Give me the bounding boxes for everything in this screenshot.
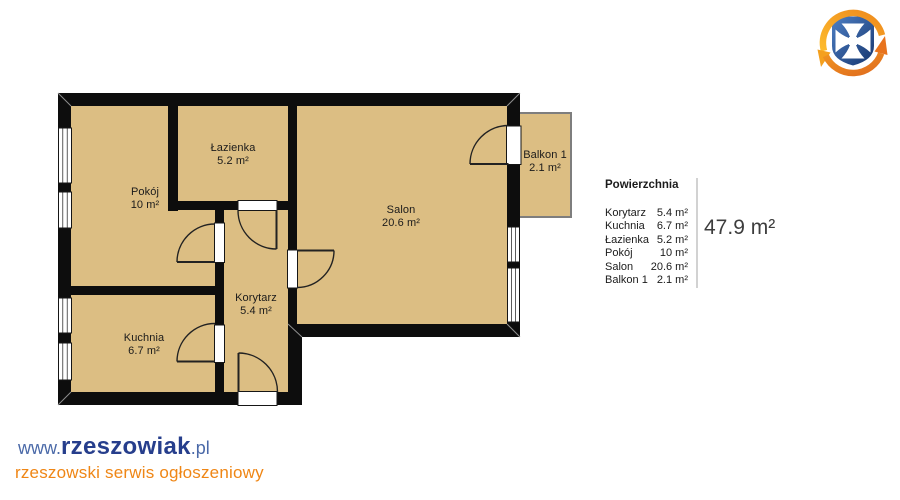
legend-divider (696, 178, 698, 288)
room-name: Korytarz (196, 292, 316, 305)
room-label-balkon: Balkon 1 2.1 m² (485, 149, 605, 174)
window-pokoj-2 (59, 192, 72, 228)
legend-row: Pokój 10 m² (605, 247, 688, 260)
window-kuchnia-1 (59, 298, 72, 333)
legend-room: Pokój (605, 247, 633, 260)
door-opening-kuchnia (215, 325, 225, 363)
window-salon-1 (508, 227, 520, 262)
door-opening-salon (288, 250, 298, 288)
legend-room: Balkon 1 (605, 274, 648, 287)
room-area: 6.7 m² (84, 345, 204, 358)
room-name: Kuchnia (84, 332, 204, 345)
rzeszow-crest-logo-icon (816, 4, 890, 80)
room-area: 20.6 m² (341, 217, 461, 230)
room-name: Salon (341, 204, 461, 217)
legend-title: Powierzchnia (605, 179, 688, 191)
site-branding: www. rzeszowiak .pl rzeszowski serwis og… (15, 433, 264, 483)
area-legend: Powierzchnia Korytarz 5.4 m² Kuchnia 6.7… (605, 179, 688, 287)
room-area: 5.2 m² (173, 155, 293, 168)
legend-value: 20.6 m² (651, 261, 688, 274)
window-salon-2 (508, 268, 520, 322)
floorplan-page: Pokój 10 m² Łazienka 5.2 m² Salon 20.6 m… (0, 0, 900, 500)
brand-www: www. (18, 438, 61, 459)
legend-value: 2.1 m² (657, 274, 688, 287)
room-area: 5.4 m² (196, 305, 316, 318)
room-label-kuchnia: Kuchnia 6.7 m² (84, 332, 204, 357)
door-opening-lazienka (238, 201, 277, 211)
window-pokoj-1 (59, 128, 72, 183)
room-name: Pokój (85, 186, 205, 199)
site-url: www. rzeszowiak .pl (18, 433, 264, 461)
legend-room: Salon (605, 261, 633, 274)
door-opening-pokoj (215, 223, 225, 263)
room-area: 10 m² (85, 199, 205, 212)
room-label-korytarz: Korytarz 5.4 m² (196, 292, 316, 317)
window-kuchnia-2 (59, 343, 72, 380)
legend-value: 10 m² (660, 247, 688, 260)
legend-value: 6.7 m² (657, 220, 688, 233)
legend-row: Salon 20.6 m² (605, 261, 688, 274)
room-label-lazienka: Łazienka 5.2 m² (173, 142, 293, 167)
total-area: 47.9 m² (704, 216, 775, 240)
room-label-salon: Salon 20.6 m² (341, 204, 461, 229)
legend-value: 5.4 m² (657, 207, 688, 220)
legend-row: Balkon 1 2.1 m² (605, 274, 688, 287)
brand-tagline: rzeszowski serwis ogłoszeniowy (15, 463, 264, 483)
legend-value: 5.2 m² (657, 234, 688, 247)
room-area: 2.1 m² (485, 162, 605, 175)
legend-row: Kuchnia 6.7 m² (605, 220, 688, 233)
legend-row: Łazienka 5.2 m² (605, 234, 688, 247)
legend-room: Łazienka (605, 234, 649, 247)
legend-room: Kuchnia (605, 220, 645, 233)
brand-name: rzeszowiak (61, 433, 191, 461)
room-name: Balkon 1 (485, 149, 605, 162)
door-opening-entrance (238, 392, 277, 406)
room-label-pokoj: Pokój 10 m² (85, 186, 205, 211)
legend-row: Korytarz 5.4 m² (605, 207, 688, 220)
floorplan-drawing (0, 0, 900, 500)
room-name: Łazienka (173, 142, 293, 155)
legend-room: Korytarz (605, 207, 646, 220)
brand-tld: .pl (191, 438, 210, 459)
